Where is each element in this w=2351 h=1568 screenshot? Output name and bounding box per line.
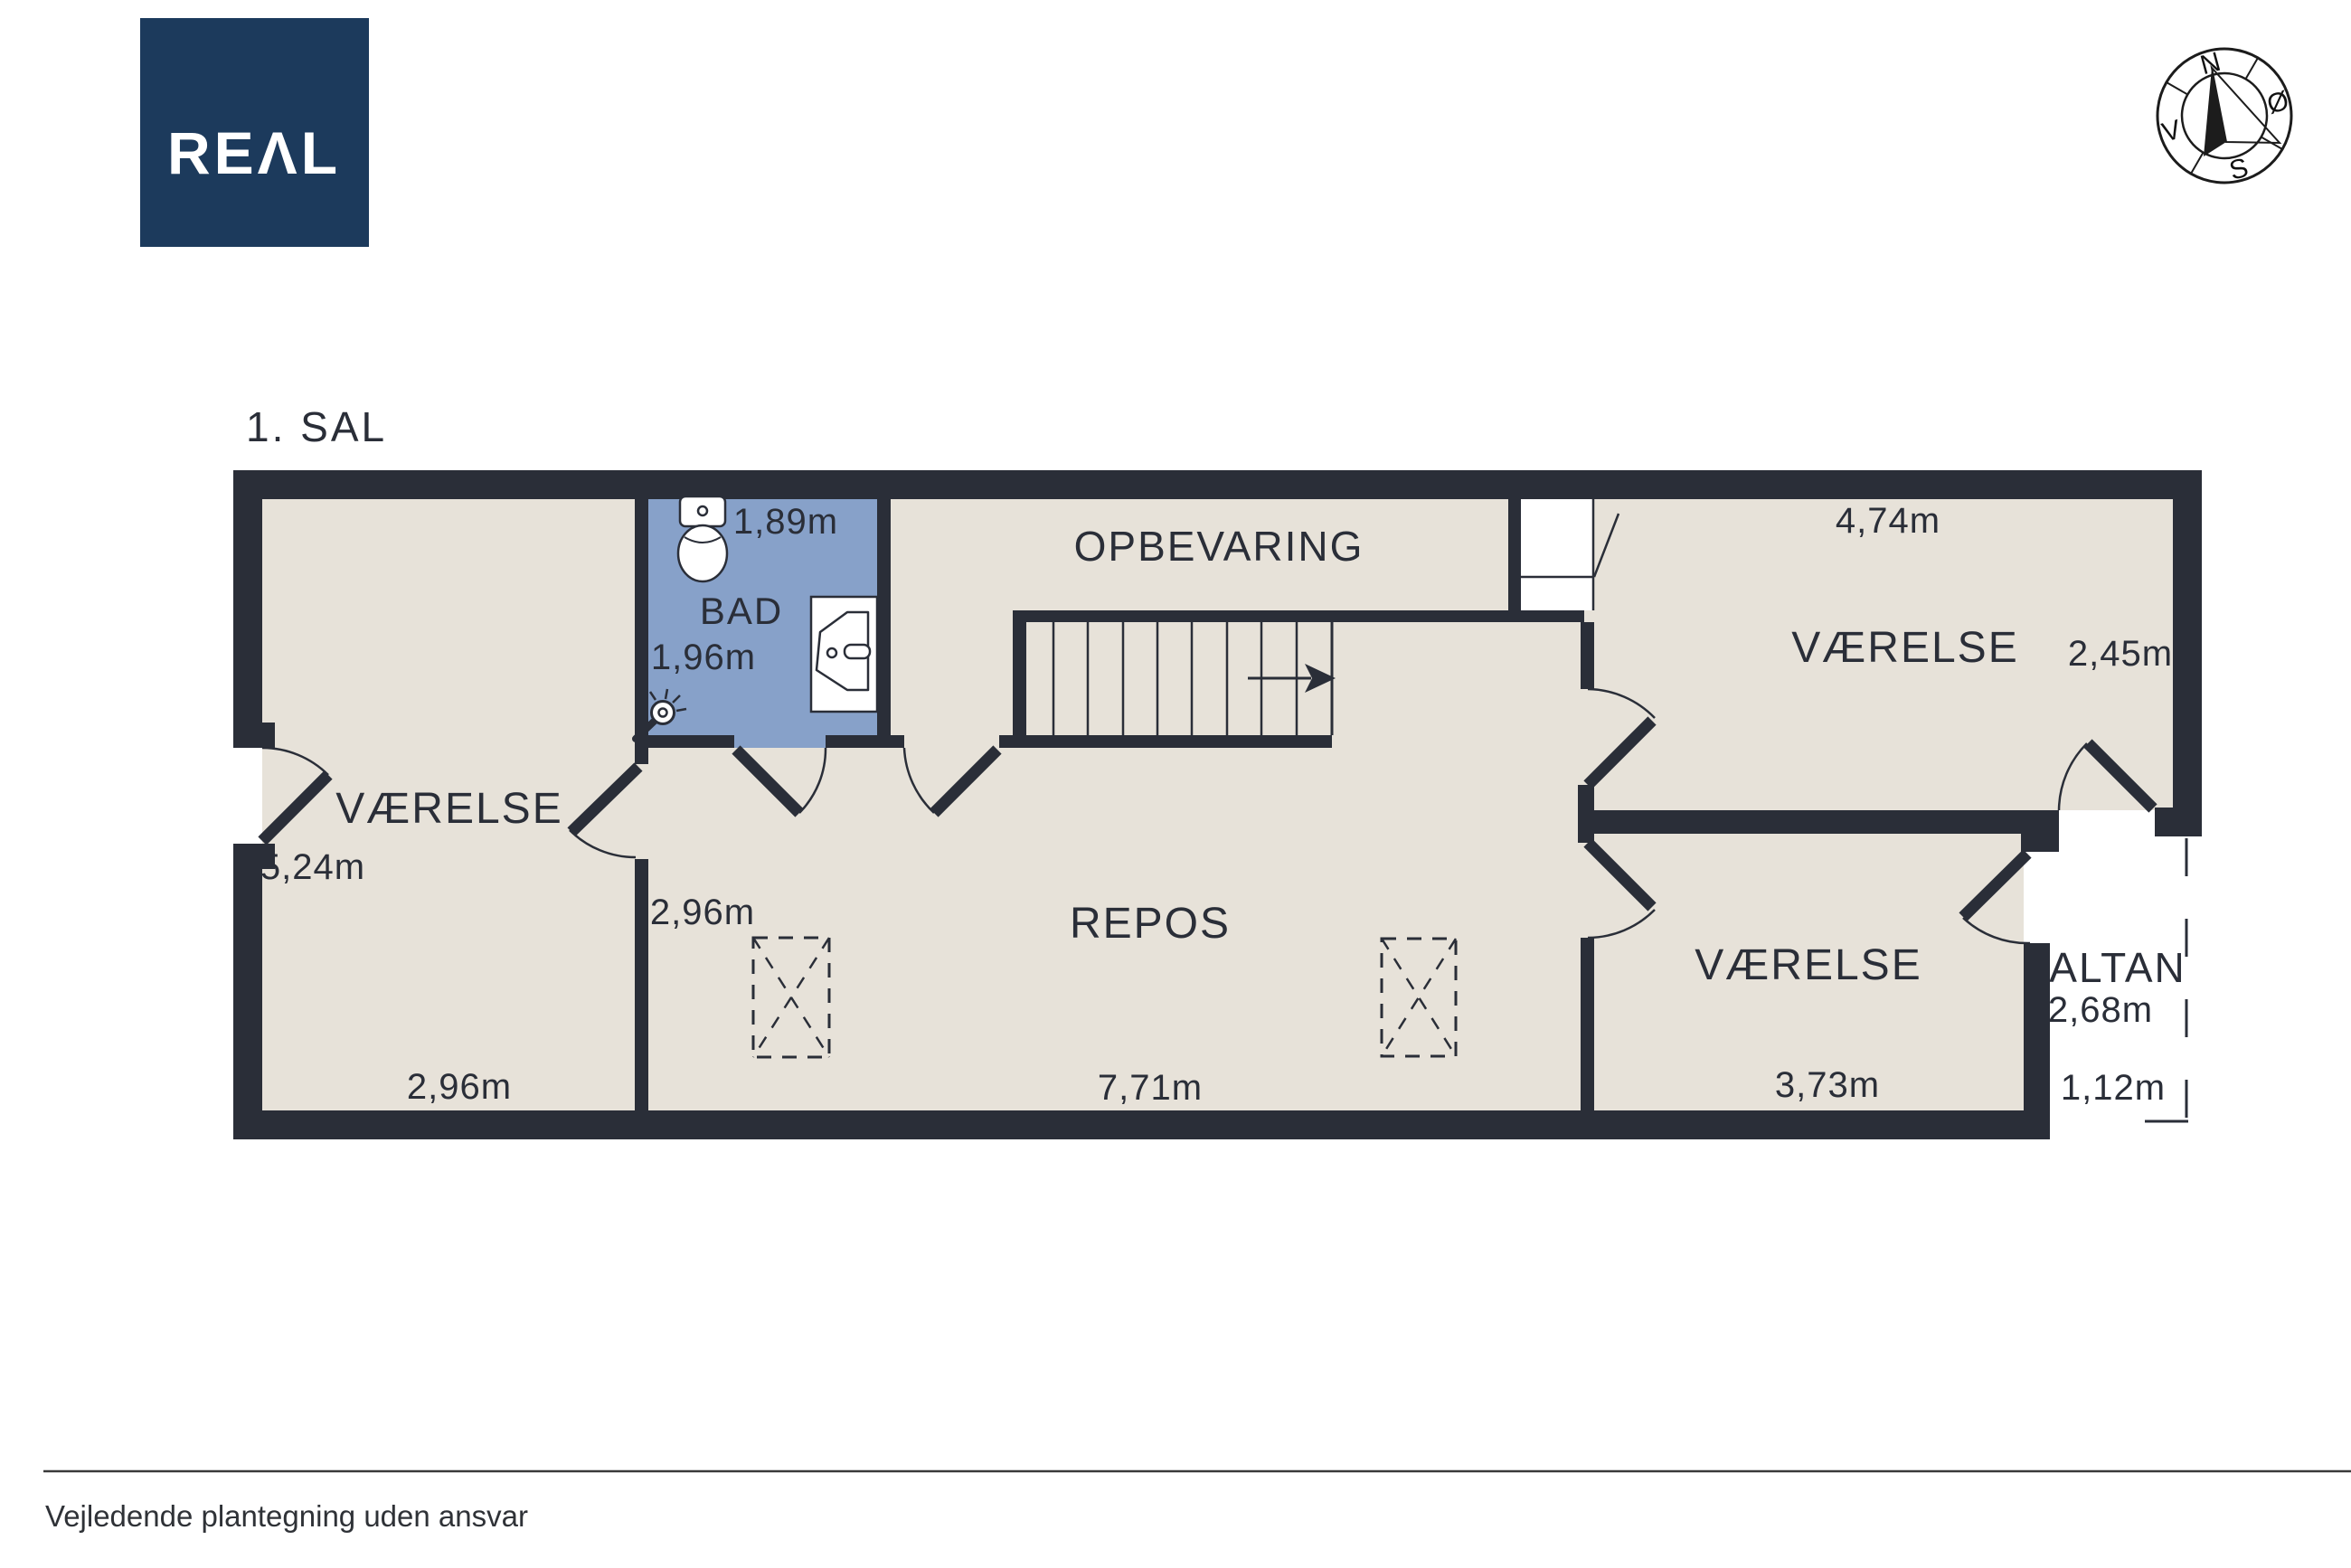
dim-repos-width: 7,71m [1098, 1068, 1203, 1108]
dim-bad-width: 1,89m [733, 502, 838, 542]
room-vaerelse-se-label: VÆRELSE [1695, 941, 1921, 989]
compass-inner-ring [2172, 63, 2276, 167]
logo-text: REΛL [167, 119, 341, 186]
room-opbevaring-label: OPBEVARING [1074, 523, 1364, 570]
room-altan-label: ALTAN [2049, 944, 2186, 991]
dim-bad-height: 1,96m [651, 638, 756, 677]
real-logo: REΛL [140, 18, 369, 247]
floor-plan-svg: REΛL 1. SAL N Ø S V [0, 0, 2351, 1568]
room-repos-label: REPOS [1070, 900, 1231, 948]
dim-altan-width: 1,12m [2061, 1068, 2166, 1108]
dim-vaerelse-se-width: 3,73m [1775, 1065, 1880, 1105]
room-vaerelse-ne-label: VÆRELSE [1791, 624, 2018, 672]
sink-icon [811, 597, 877, 712]
room-vaerelse-left-label: VÆRELSE [335, 785, 562, 833]
dim-repos-corridor-width: 2,96m [650, 893, 755, 932]
dim-altan-height: 2,68m [2048, 990, 2153, 1030]
page-title: 1. SAL [246, 403, 387, 450]
footer-disclaimer: Vejledende plantegning uden ansvar [45, 1499, 528, 1533]
closet-floor [1521, 499, 1593, 610]
dim-vaerelse-left-height: 5,24m [260, 847, 365, 887]
room-bad-label: BAD [700, 590, 783, 632]
floor-plan-page: REΛL 1. SAL N Ø S V [0, 0, 2351, 1568]
dim-vaerelse-left-width: 2,96m [407, 1067, 512, 1107]
toilet-icon [678, 496, 727, 581]
compass-rose-icon: N Ø S V [2142, 32, 2308, 201]
dim-vaerelse-ne-width: 4,74m [1836, 501, 1940, 541]
dim-vaerelse-ne-height: 2,45m [2068, 634, 2173, 674]
